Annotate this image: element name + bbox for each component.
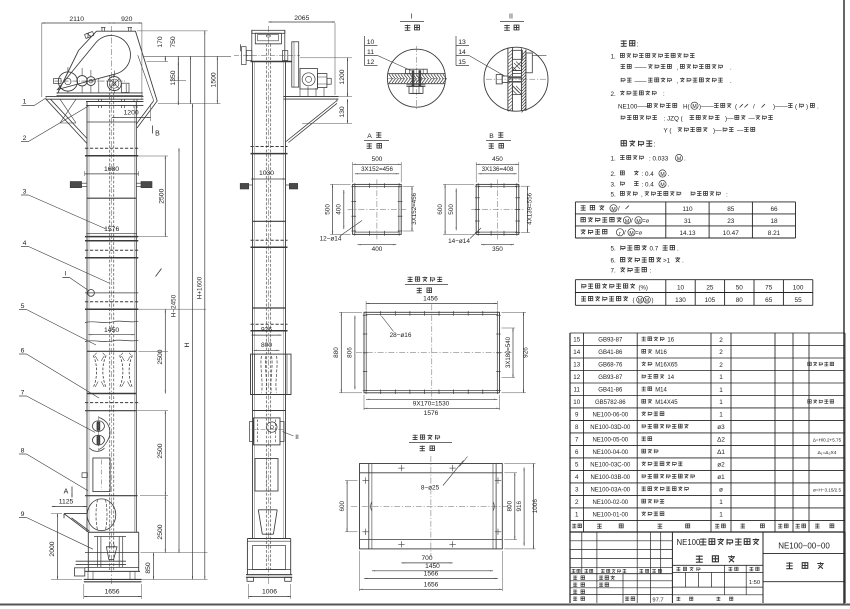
svg-text:ø: ø <box>719 487 723 494</box>
svg-text:(%): (%) <box>639 285 648 291</box>
svg-text:80: 80 <box>736 297 744 304</box>
svg-text:14: 14 <box>667 375 674 381</box>
svg-text:2: 2 <box>23 135 27 142</box>
svg-text:GB41-86: GB41-86 <box>598 388 623 394</box>
svg-text:97.7: 97.7 <box>652 597 663 603</box>
svg-text:1:50: 1:50 <box>749 580 760 586</box>
svg-text:——: —— <box>635 79 647 85</box>
svg-text:: JZQ (: : JZQ ( <box>664 116 684 123</box>
svg-text:ø3: ø3 <box>717 424 725 431</box>
svg-text:1: 1 <box>719 412 723 419</box>
svg-text:9: 9 <box>21 511 25 518</box>
svg-text:/: / <box>753 104 755 111</box>
svg-text:.: . <box>677 246 679 253</box>
svg-text:M: M <box>629 231 633 237</box>
svg-text:800: 800 <box>261 342 272 349</box>
svg-text:1500: 1500 <box>210 72 217 87</box>
svg-text:31: 31 <box>684 218 692 225</box>
svg-text:M14X45: M14X45 <box>655 400 678 406</box>
svg-text:13: 13 <box>458 39 466 46</box>
svg-text:)——: )—— <box>699 104 714 111</box>
svg-text:916: 916 <box>516 500 523 511</box>
svg-text:1030: 1030 <box>259 170 274 177</box>
svg-text:8: 8 <box>575 424 579 431</box>
svg-text:1656: 1656 <box>104 588 119 595</box>
svg-text:6: 6 <box>575 449 579 456</box>
svg-text:1: 1 <box>719 374 723 381</box>
svg-text:130: 130 <box>339 106 346 118</box>
svg-text:1: 1 <box>719 499 723 506</box>
svg-text:1006: 1006 <box>532 499 539 514</box>
svg-text:12: 12 <box>573 374 580 381</box>
svg-text:2.: 2. <box>611 171 617 178</box>
svg-text:926: 926 <box>522 347 529 358</box>
svg-text:M: M <box>645 298 649 304</box>
svg-text:1: 1 <box>719 399 723 406</box>
svg-text:55: 55 <box>795 297 803 304</box>
svg-text:2: 2 <box>719 349 723 356</box>
svg-text:750: 750 <box>170 36 177 48</box>
svg-text:25: 25 <box>706 284 714 291</box>
svg-text:130: 130 <box>675 297 686 304</box>
svg-text:M16: M16 <box>655 350 667 356</box>
svg-text:ø1: ø1 <box>717 474 725 481</box>
svg-text:Y (: Y ( <box>664 128 673 135</box>
svg-text:350: 350 <box>492 246 503 253</box>
svg-text:/: / <box>624 230 626 237</box>
svg-text:2500: 2500 <box>158 188 165 203</box>
svg-text:GB93-87: GB93-87 <box>598 338 623 344</box>
svg-text:NE100-04-00: NE100-04-00 <box>592 450 628 456</box>
svg-text:9X170=1530: 9X170=1530 <box>413 400 450 407</box>
svg-text::: : <box>726 192 728 199</box>
svg-text:1.: 1. <box>611 156 617 163</box>
svg-text:50: 50 <box>736 284 744 291</box>
svg-text:GB5782-86: GB5782-86 <box>595 400 626 406</box>
svg-text:500: 500 <box>448 204 455 215</box>
svg-text:1: 1 <box>23 99 27 106</box>
svg-text:)——: )—— <box>773 104 788 111</box>
svg-text:880: 880 <box>333 347 340 358</box>
svg-text:920: 920 <box>121 16 133 23</box>
svg-text::: : <box>637 42 639 49</box>
svg-text:GB93-87: GB93-87 <box>598 375 623 381</box>
svg-text:1576: 1576 <box>424 410 439 417</box>
svg-text:Δ1: Δ1 <box>717 449 725 456</box>
svg-text:7: 7 <box>21 390 25 397</box>
svg-text:.: . <box>817 104 819 111</box>
svg-text:110: 110 <box>682 206 693 213</box>
svg-text:/: / <box>618 206 620 213</box>
svg-text:28−ø16: 28−ø16 <box>390 332 412 339</box>
svg-text:2: 2 <box>719 362 723 369</box>
svg-text:11: 11 <box>573 387 580 394</box>
svg-text:: 0.4: : 0.4 <box>642 182 655 189</box>
svg-text:—: — <box>749 116 756 123</box>
svg-text:2: 2 <box>575 499 579 506</box>
svg-text:10: 10 <box>367 39 375 46</box>
svg-text:H: H <box>184 342 191 347</box>
svg-text:450: 450 <box>492 156 503 163</box>
svg-text:600: 600 <box>437 204 444 215</box>
svg-text:3: 3 <box>575 486 579 493</box>
svg-text:: 0.033: : 0.033 <box>649 156 669 163</box>
svg-text:,: , <box>641 192 643 199</box>
svg-text:H−2450: H−2450 <box>171 294 178 317</box>
svg-text:H(: H( <box>683 104 691 111</box>
svg-text:926: 926 <box>261 327 272 334</box>
svg-text:1350: 1350 <box>170 70 177 85</box>
svg-text:7.: 7. <box>611 268 617 275</box>
svg-text:M16X65: M16X65 <box>655 363 678 369</box>
svg-text:)—: )— <box>725 116 734 123</box>
svg-text:NE100-03B-00: NE100-03B-00 <box>590 475 630 481</box>
svg-text:1450: 1450 <box>104 327 119 334</box>
svg-text:14−ø14: 14−ø14 <box>448 238 470 245</box>
svg-text:A: A <box>367 133 372 140</box>
svg-text::: : <box>654 142 656 149</box>
svg-text:400: 400 <box>336 204 343 215</box>
svg-text:.: . <box>682 258 684 265</box>
svg-text:.: . <box>684 156 686 163</box>
svg-text:5.: 5. <box>611 192 617 199</box>
svg-text:B: B <box>489 133 494 140</box>
svg-text:>1: >1 <box>663 258 671 265</box>
svg-text:4X139=556: 4X139=556 <box>526 192 533 224</box>
svg-text:850: 850 <box>145 562 152 574</box>
svg-text:1.: 1. <box>611 54 617 61</box>
svg-text:ø=H−3.15/2.5: ø=H−3.15/2.5 <box>813 487 842 492</box>
svg-text:2065: 2065 <box>294 15 309 22</box>
svg-text:=ø: =ø <box>636 231 643 237</box>
svg-text:1200: 1200 <box>339 69 346 84</box>
svg-text:7: 7 <box>575 436 579 443</box>
svg-text:600: 600 <box>339 500 346 511</box>
svg-text:M14: M14 <box>655 388 667 394</box>
svg-text:15: 15 <box>458 59 466 66</box>
svg-text:500: 500 <box>324 204 331 215</box>
svg-text:NE100——: NE100—— <box>618 104 651 111</box>
svg-text:18: 18 <box>770 218 778 225</box>
svg-text:M: M <box>677 157 681 163</box>
svg-text:.: . <box>668 171 670 178</box>
svg-text:GB68-76: GB68-76 <box>598 363 623 369</box>
svg-text:8−ø25: 8−ø25 <box>421 485 440 492</box>
svg-text:15: 15 <box>573 337 580 344</box>
svg-text:M: M <box>636 219 640 225</box>
svg-text:3X152=456: 3X152=456 <box>411 192 418 224</box>
svg-text:8.21: 8.21 <box>768 230 781 237</box>
svg-text:85: 85 <box>727 206 735 213</box>
svg-text:): ) <box>806 104 808 111</box>
svg-text:3X180=540: 3X180=540 <box>506 336 512 368</box>
svg-text:6.: 6. <box>611 258 617 265</box>
svg-text:Δ₁=Δ₂X4: Δ₁=Δ₂X4 <box>818 450 837 456</box>
svg-text:2110: 2110 <box>69 16 84 23</box>
svg-text:1200: 1200 <box>124 110 139 117</box>
svg-text:.: . <box>668 182 670 189</box>
svg-text:105: 105 <box>705 297 716 304</box>
svg-text:4: 4 <box>575 474 579 481</box>
svg-text:5.: 5. <box>611 246 617 253</box>
svg-text:2500: 2500 <box>157 443 164 458</box>
svg-text:NE100: NE100 <box>677 538 702 547</box>
svg-text:3.: 3. <box>611 182 617 189</box>
svg-text:M: M <box>625 219 629 225</box>
svg-text:II: II <box>509 14 513 21</box>
svg-text:3: 3 <box>23 189 27 196</box>
svg-text:M: M <box>611 207 615 213</box>
svg-text:13: 13 <box>573 362 580 369</box>
svg-text:B: B <box>155 131 160 138</box>
svg-text:: 0.4: : 0.4 <box>642 171 655 178</box>
svg-text:ø2: ø2 <box>717 462 725 469</box>
svg-text:M: M <box>660 172 664 178</box>
svg-text:H+1600: H+1600 <box>196 276 203 299</box>
svg-text:1: 1 <box>575 511 579 518</box>
svg-text:23: 23 <box>727 218 735 225</box>
svg-text:1680: 1680 <box>104 166 119 173</box>
svg-text:1456: 1456 <box>423 296 438 303</box>
svg-text:806: 806 <box>347 347 354 358</box>
svg-text:—: — <box>737 128 744 135</box>
svg-text:3X152=456: 3X152=456 <box>361 166 393 173</box>
svg-text:——: —— <box>635 66 647 72</box>
svg-text:1: 1 <box>719 387 723 394</box>
svg-text:0.7: 0.7 <box>650 246 659 253</box>
svg-text:2500: 2500 <box>157 524 164 539</box>
svg-text:NE100-02-00: NE100-02-00 <box>592 500 628 506</box>
svg-text:14.13: 14.13 <box>680 230 696 237</box>
svg-text:400: 400 <box>372 246 383 253</box>
svg-text:2: 2 <box>719 337 723 344</box>
svg-text:II: II <box>295 434 299 441</box>
svg-text:M: M <box>692 104 696 110</box>
svg-text:NE100-03A-00: NE100-03A-00 <box>590 487 630 493</box>
svg-text::: : <box>650 268 652 275</box>
svg-text:11: 11 <box>367 49 374 56</box>
svg-text:5: 5 <box>575 461 579 468</box>
svg-text:700: 700 <box>421 555 432 562</box>
svg-text:)—: )— <box>713 128 722 135</box>
svg-text:=ø: =ø <box>643 219 650 225</box>
svg-text:5: 5 <box>21 303 25 310</box>
svg-text:16: 16 <box>667 338 674 344</box>
svg-text:14: 14 <box>573 349 580 356</box>
svg-text:1566: 1566 <box>424 570 439 577</box>
svg-text:M: M <box>638 298 642 304</box>
svg-text:NE100-03D-00: NE100-03D-00 <box>590 425 631 431</box>
svg-text:NE100-06-00: NE100-06-00 <box>592 412 628 418</box>
svg-text:500: 500 <box>372 156 383 163</box>
svg-text:NE100−00−00: NE100−00−00 <box>778 542 830 551</box>
svg-text:r: r <box>619 231 621 237</box>
svg-text:75: 75 <box>765 284 773 291</box>
svg-text:3X136=408: 3X136=408 <box>482 166 514 173</box>
svg-text:9: 9 <box>575 411 579 418</box>
svg-text:100: 100 <box>793 284 804 291</box>
svg-text:800: 800 <box>507 500 514 511</box>
svg-text:1656: 1656 <box>424 581 439 588</box>
svg-text:10: 10 <box>677 284 685 291</box>
svg-text:/: / <box>631 218 633 225</box>
svg-text:6: 6 <box>21 348 25 355</box>
svg-text:NE100-05-00: NE100-05-00 <box>592 437 628 443</box>
svg-text:1006: 1006 <box>262 588 277 595</box>
svg-text:1576: 1576 <box>104 226 119 233</box>
svg-text:10.47: 10.47 <box>723 230 739 237</box>
svg-text:4: 4 <box>23 240 27 247</box>
svg-text:8: 8 <box>21 448 25 455</box>
svg-text:Δ2: Δ2 <box>717 437 725 444</box>
svg-text:NE100-01-00: NE100-01-00 <box>592 512 628 518</box>
svg-text:I: I <box>65 271 67 278</box>
svg-text:Δ=H/0.2+5.75: Δ=H/0.2+5.75 <box>813 437 842 442</box>
svg-text:65: 65 <box>765 297 773 304</box>
svg-text:66: 66 <box>770 206 778 213</box>
svg-text:1125: 1125 <box>59 498 74 505</box>
svg-text:A: A <box>64 489 69 496</box>
svg-text:I: I <box>411 14 413 21</box>
svg-text:NE100-03C-00: NE100-03C-00 <box>590 462 631 468</box>
svg-text:14: 14 <box>458 49 466 56</box>
svg-text:2.: 2. <box>611 91 617 98</box>
svg-text:12−ø14: 12−ø14 <box>320 235 342 242</box>
svg-text:(: ( <box>633 298 635 304</box>
svg-text:): ) <box>652 298 654 304</box>
svg-text:1450: 1450 <box>425 563 440 570</box>
svg-text:M: M <box>660 183 664 189</box>
svg-text:GB41-86: GB41-86 <box>598 350 623 356</box>
svg-text:12: 12 <box>367 59 375 66</box>
svg-text:2000: 2000 <box>49 541 56 556</box>
svg-text:1: 1 <box>719 512 723 519</box>
svg-text:170: 170 <box>157 36 164 48</box>
svg-text:10: 10 <box>573 399 580 406</box>
